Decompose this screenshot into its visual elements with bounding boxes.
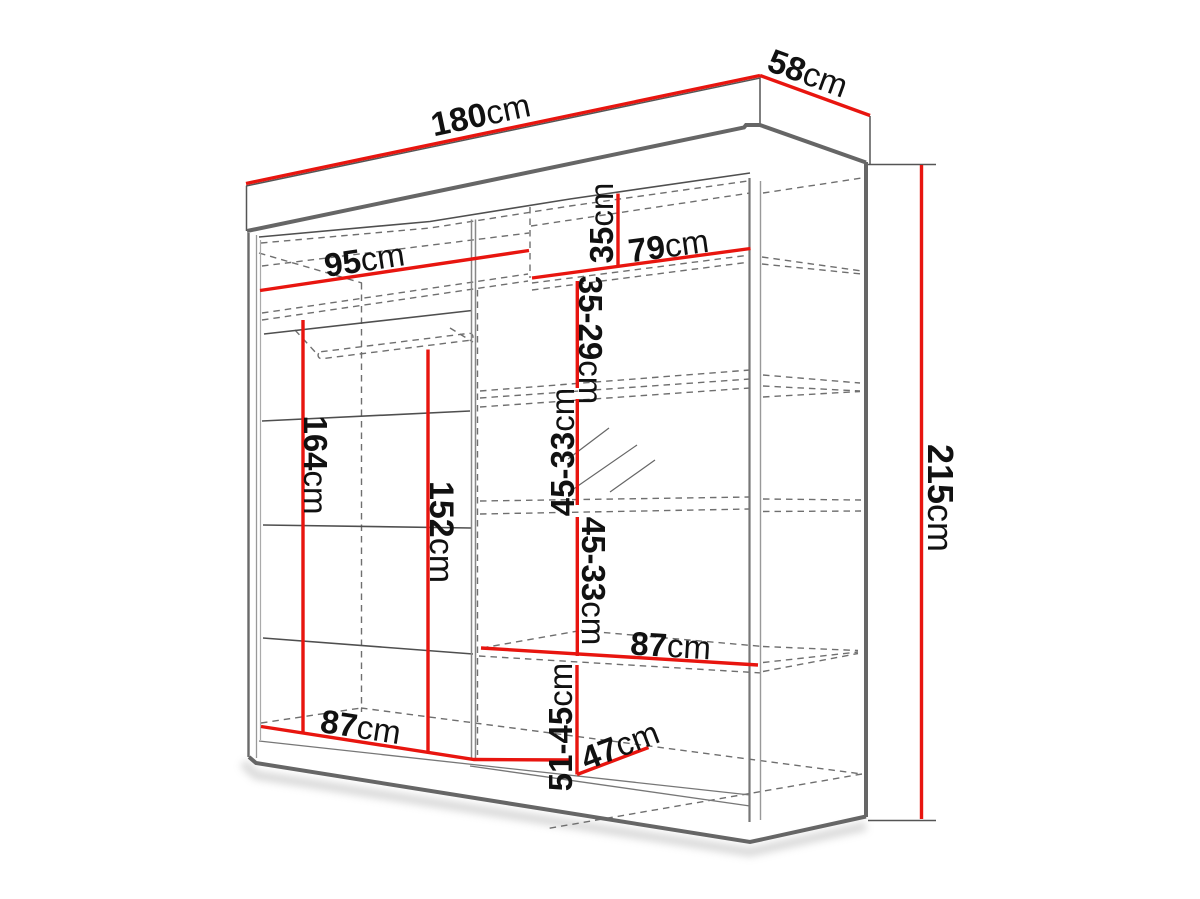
svg-text:87cm: 87cm: [629, 625, 712, 667]
svg-text:152cm: 152cm: [422, 481, 460, 583]
svg-text:45-33cm: 45-33cm: [575, 517, 612, 645]
svg-text:51-45cm: 51-45cm: [542, 663, 579, 791]
svg-text:164cm: 164cm: [297, 415, 334, 514]
svg-text:35-29cm: 35-29cm: [572, 276, 609, 404]
svg-text:215cm: 215cm: [920, 444, 961, 552]
svg-text:45-33cm: 45-33cm: [544, 388, 581, 516]
svg-text:35cm: 35cm: [583, 183, 620, 264]
